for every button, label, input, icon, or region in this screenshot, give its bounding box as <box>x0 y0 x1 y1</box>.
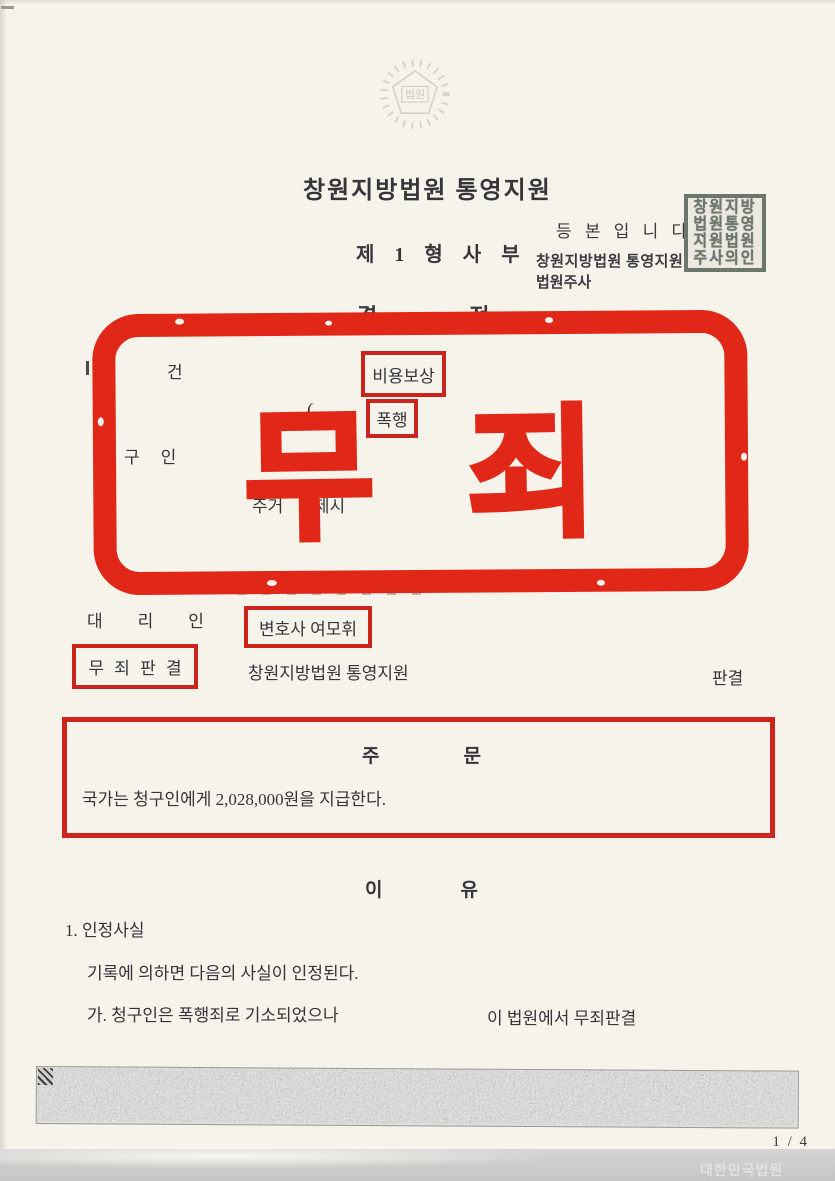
order-heading-char: 문 <box>463 741 480 768</box>
annotation-box-order-section <box>62 717 775 838</box>
certifying-court: 창원지방법원 통영지원 <box>536 250 683 271</box>
verdict-court: 창원지방법원 통영지원 <box>248 659 409 684</box>
lawyer-name: 변호사 여모휘 <box>259 615 357 640</box>
stamp-speckle <box>545 317 553 323</box>
annotation-box-assault: 폭행 <box>366 399 418 438</box>
reasons-line1: 기록에 의하면 다음의 사실이 인정된다. <box>87 959 359 984</box>
emblem-label: 법원 <box>405 88 425 101</box>
stamp-char1: 무 <box>243 408 376 550</box>
verdict-suffix: 판결 <box>712 664 743 689</box>
seal-row: 주사의인 <box>688 250 762 268</box>
order-heading-char: 주 <box>362 741 379 768</box>
seal-row: 창원지방 <box>688 199 762 217</box>
rep-label-char: 대 <box>87 607 103 632</box>
annotation-box-lawyer: 변호사 여모휘 <box>244 606 372 648</box>
scanned-court-document: 법원 창원지방법원 통영지원 제 1 형 사 부 결 정 등 본 입 니 다 .… <box>0 0 835 1181</box>
redaction-noise-bar <box>36 1066 799 1129</box>
case-value: 비용보상 <box>372 362 435 387</box>
scanner-band-sheen <box>0 1143 560 1169</box>
clerk-seal-icon: 창원지방 법원통영 지원법원 주사의인 <box>684 194 766 272</box>
verdict-text: 무 죄 판 결 <box>88 654 181 679</box>
seal-row: 법원통영 <box>688 216 762 234</box>
order-heading: 주 문 <box>362 741 481 768</box>
division-title: 제 1 형 사 부 <box>356 238 524 267</box>
charge-value: 폭행 <box>376 406 407 431</box>
reasons-heading: 이 유 <box>365 875 478 902</box>
rep-label-char: 리 <box>138 607 154 632</box>
stamp-speckle <box>267 580 277 586</box>
reasons-heading-char: 이 <box>365 875 382 902</box>
representative-label: 대 리 인 <box>87 607 204 632</box>
reasons-heading-char: 유 <box>460 875 477 902</box>
court-clerk-title: 법원주사 <box>536 271 591 292</box>
page-title: 창원지방법원 통영지원 <box>303 170 553 205</box>
scan-corner-mark <box>1 6 14 9</box>
scan-edge-shadow-left <box>0 0 7 1181</box>
reasons-item-number: 1. 인정사실 <box>65 916 145 941</box>
stamp-speckle <box>175 319 184 325</box>
stamp-speckle <box>325 321 332 326</box>
reasons-line2-left: 가. 청구인은 폭행죄로 기소되었으나 <box>87 1001 339 1026</box>
court-emblem-icon: 법원 <box>376 52 454 138</box>
stamp-speckle <box>597 580 605 586</box>
obscured-char-fragment <box>86 361 89 375</box>
order-body: 국가는 청구인에게 2,028,000원을 지급한다. <box>82 785 386 810</box>
seal-row: 지원법원 <box>688 233 762 251</box>
scan-edge-shadow-top <box>0 0 835 5</box>
annotation-box-cost-compensation: 비용보상 <box>361 351 446 397</box>
not-guilty-stamp-text: 무 죄 <box>115 402 726 552</box>
stamp-speckle <box>741 453 747 461</box>
redaction-corner-mark <box>38 1068 53 1085</box>
annotation-box-not-guilty-verdict: 무 죄 판 결 <box>72 644 198 689</box>
courts-of-korea-watermark: 대한민국법원 <box>700 1160 820 1180</box>
stamp-speckle <box>98 417 104 426</box>
rep-label-char: 인 <box>188 607 204 632</box>
stamp-char2: 죄 <box>466 404 599 546</box>
reasons-line2-right: 이 법원에서 무죄판결 <box>487 1004 636 1029</box>
